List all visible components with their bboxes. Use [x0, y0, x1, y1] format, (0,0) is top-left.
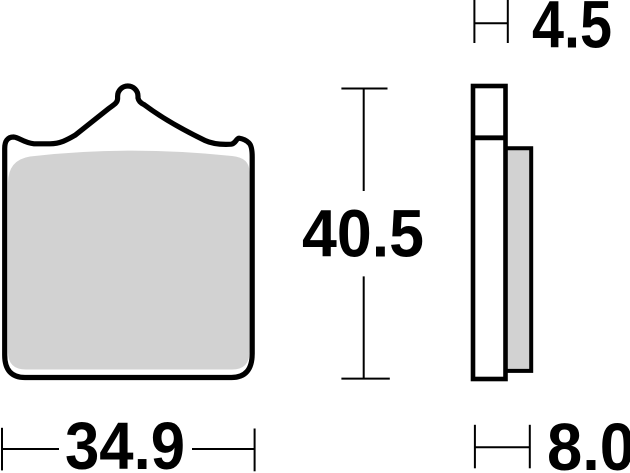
svg-text:40.5: 40.5: [302, 197, 424, 272]
svg-text:4.5: 4.5: [532, 0, 612, 63]
svg-text:34.9: 34.9: [65, 409, 185, 473]
svg-text:8.0: 8.0: [547, 410, 630, 473]
